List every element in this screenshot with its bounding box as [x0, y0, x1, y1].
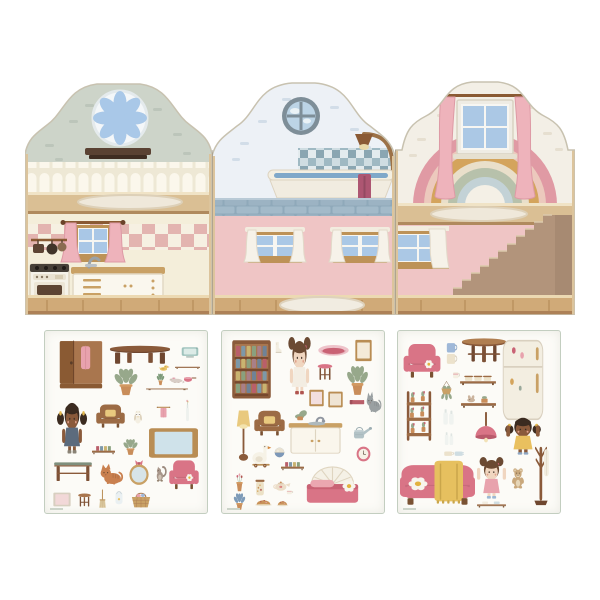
pink-stool-sticker: [314, 361, 336, 383]
picture-frame-tall-sticker: [355, 339, 372, 362]
milk-bottles-sticker: [440, 403, 457, 427]
doll-girl-arms-up-pink-sticker: [475, 457, 508, 499]
small-frame-b-sticker: [328, 391, 343, 408]
muffin-sticker: [276, 496, 289, 507]
sticker-sheet-living: [44, 330, 208, 514]
mug-stack-sticker: [443, 341, 459, 367]
print-mark: [227, 508, 240, 510]
tile-splashback: [298, 148, 395, 172]
wall-shelf-sticker: [175, 361, 200, 370]
fridge-sticker: [500, 339, 546, 421]
panel-fold-line: [212, 150, 213, 314]
cat-orange-sticker: [98, 461, 124, 486]
small-frame-a-sticker: [309, 389, 324, 407]
owl-sticker: [132, 407, 144, 425]
bathtub: [268, 170, 394, 200]
dustpan-brush-sticker: [97, 489, 108, 509]
tv-sticker: [181, 345, 199, 359]
cake-plate-sticker: [254, 494, 273, 507]
rabbit-shelf-sticker: [461, 391, 496, 410]
wooden-plank-sticker: [146, 384, 188, 391]
wardrobe-sticker: [58, 339, 104, 391]
saucepan-sticker: [182, 372, 197, 384]
teddy-bear-sticker: [509, 467, 527, 489]
floor: [212, 295, 395, 315]
doll-girl-buns-sticker: [284, 337, 315, 395]
upper-floor: [25, 192, 212, 214]
panel-bathroom: [212, 78, 395, 315]
framed-board-sticker: [148, 427, 199, 459]
watering-can-sticker: [350, 422, 372, 442]
pet-basket-sticker: [317, 341, 350, 359]
toy-basket-sticker: [129, 489, 153, 509]
cat-grey-sticker: [365, 389, 382, 414]
coat-rack-sticker: [526, 443, 556, 507]
doll-girl-pigtails-sticker: [56, 399, 88, 454]
pink-armchair-sticker: [402, 339, 442, 381]
panel-fold-line: [395, 150, 396, 314]
sink-cabinet-sticker: [287, 409, 344, 456]
porthole-window: [282, 97, 320, 135]
floor: [395, 295, 575, 315]
flower-vase-sticker: [183, 399, 192, 423]
pendant-lamp-sticker: [470, 412, 502, 451]
red-book-sticker: [348, 397, 366, 407]
rosette-flower-window: [93, 91, 147, 145]
bookcase-sticker: [231, 339, 272, 401]
pink-armchair-sticker: [168, 456, 200, 492]
white-curtain-window-right: [329, 227, 391, 263]
bib-sticker: [111, 491, 127, 508]
armchair-brown-sticker: [253, 407, 286, 438]
print-mark: [403, 508, 416, 510]
panel-bedroom: [395, 78, 575, 315]
white-curtain-window-left: [244, 227, 306, 263]
product-image: [0, 0, 600, 600]
flower-pot-sticker: [232, 471, 247, 493]
armchair-brown-sticker: [95, 401, 126, 430]
teacup-sticker: [284, 487, 295, 496]
goose-pull-toy-sticker: [249, 442, 273, 468]
potted-plant-small-sticker: [120, 437, 141, 456]
squirrel-toy-sticker: [153, 464, 168, 483]
sticker-sheet-bedroom: [221, 330, 385, 514]
cup-shelf-sticker: [477, 496, 506, 509]
blue-brick-ledge: [212, 198, 395, 216]
desk-sticker: [53, 457, 93, 484]
towel-rail-sticker: [156, 404, 171, 421]
picture-frame-sticker: [53, 492, 71, 507]
stool-sticker: [75, 491, 94, 509]
jar-shelf-sticker: [460, 371, 496, 387]
potted-plant-sticker: [109, 365, 143, 397]
panel-kitchen: [25, 78, 212, 315]
wall-shelf: [85, 148, 151, 159]
bottles-small-sticker: [442, 427, 456, 447]
stove-oven: [30, 264, 69, 300]
sticker-sheet-playroom: [397, 330, 561, 514]
book-shelf-sticker: [281, 457, 304, 472]
print-mark: [50, 508, 63, 510]
scalloped-wainscot: [25, 162, 212, 192]
floor: [25, 295, 212, 315]
boot-sticker: [272, 341, 283, 355]
sofa-sticker: [400, 453, 475, 508]
book-shelf-small-sticker: [92, 441, 115, 456]
plant-stand-sticker: [403, 389, 435, 444]
hanging-plant-sticker: [435, 381, 458, 405]
white-curtain-window: [395, 226, 449, 269]
duck-toy-sticker: [158, 363, 170, 372]
bed-sticker: [304, 456, 361, 508]
oval-mirror-sticker: [127, 459, 151, 486]
